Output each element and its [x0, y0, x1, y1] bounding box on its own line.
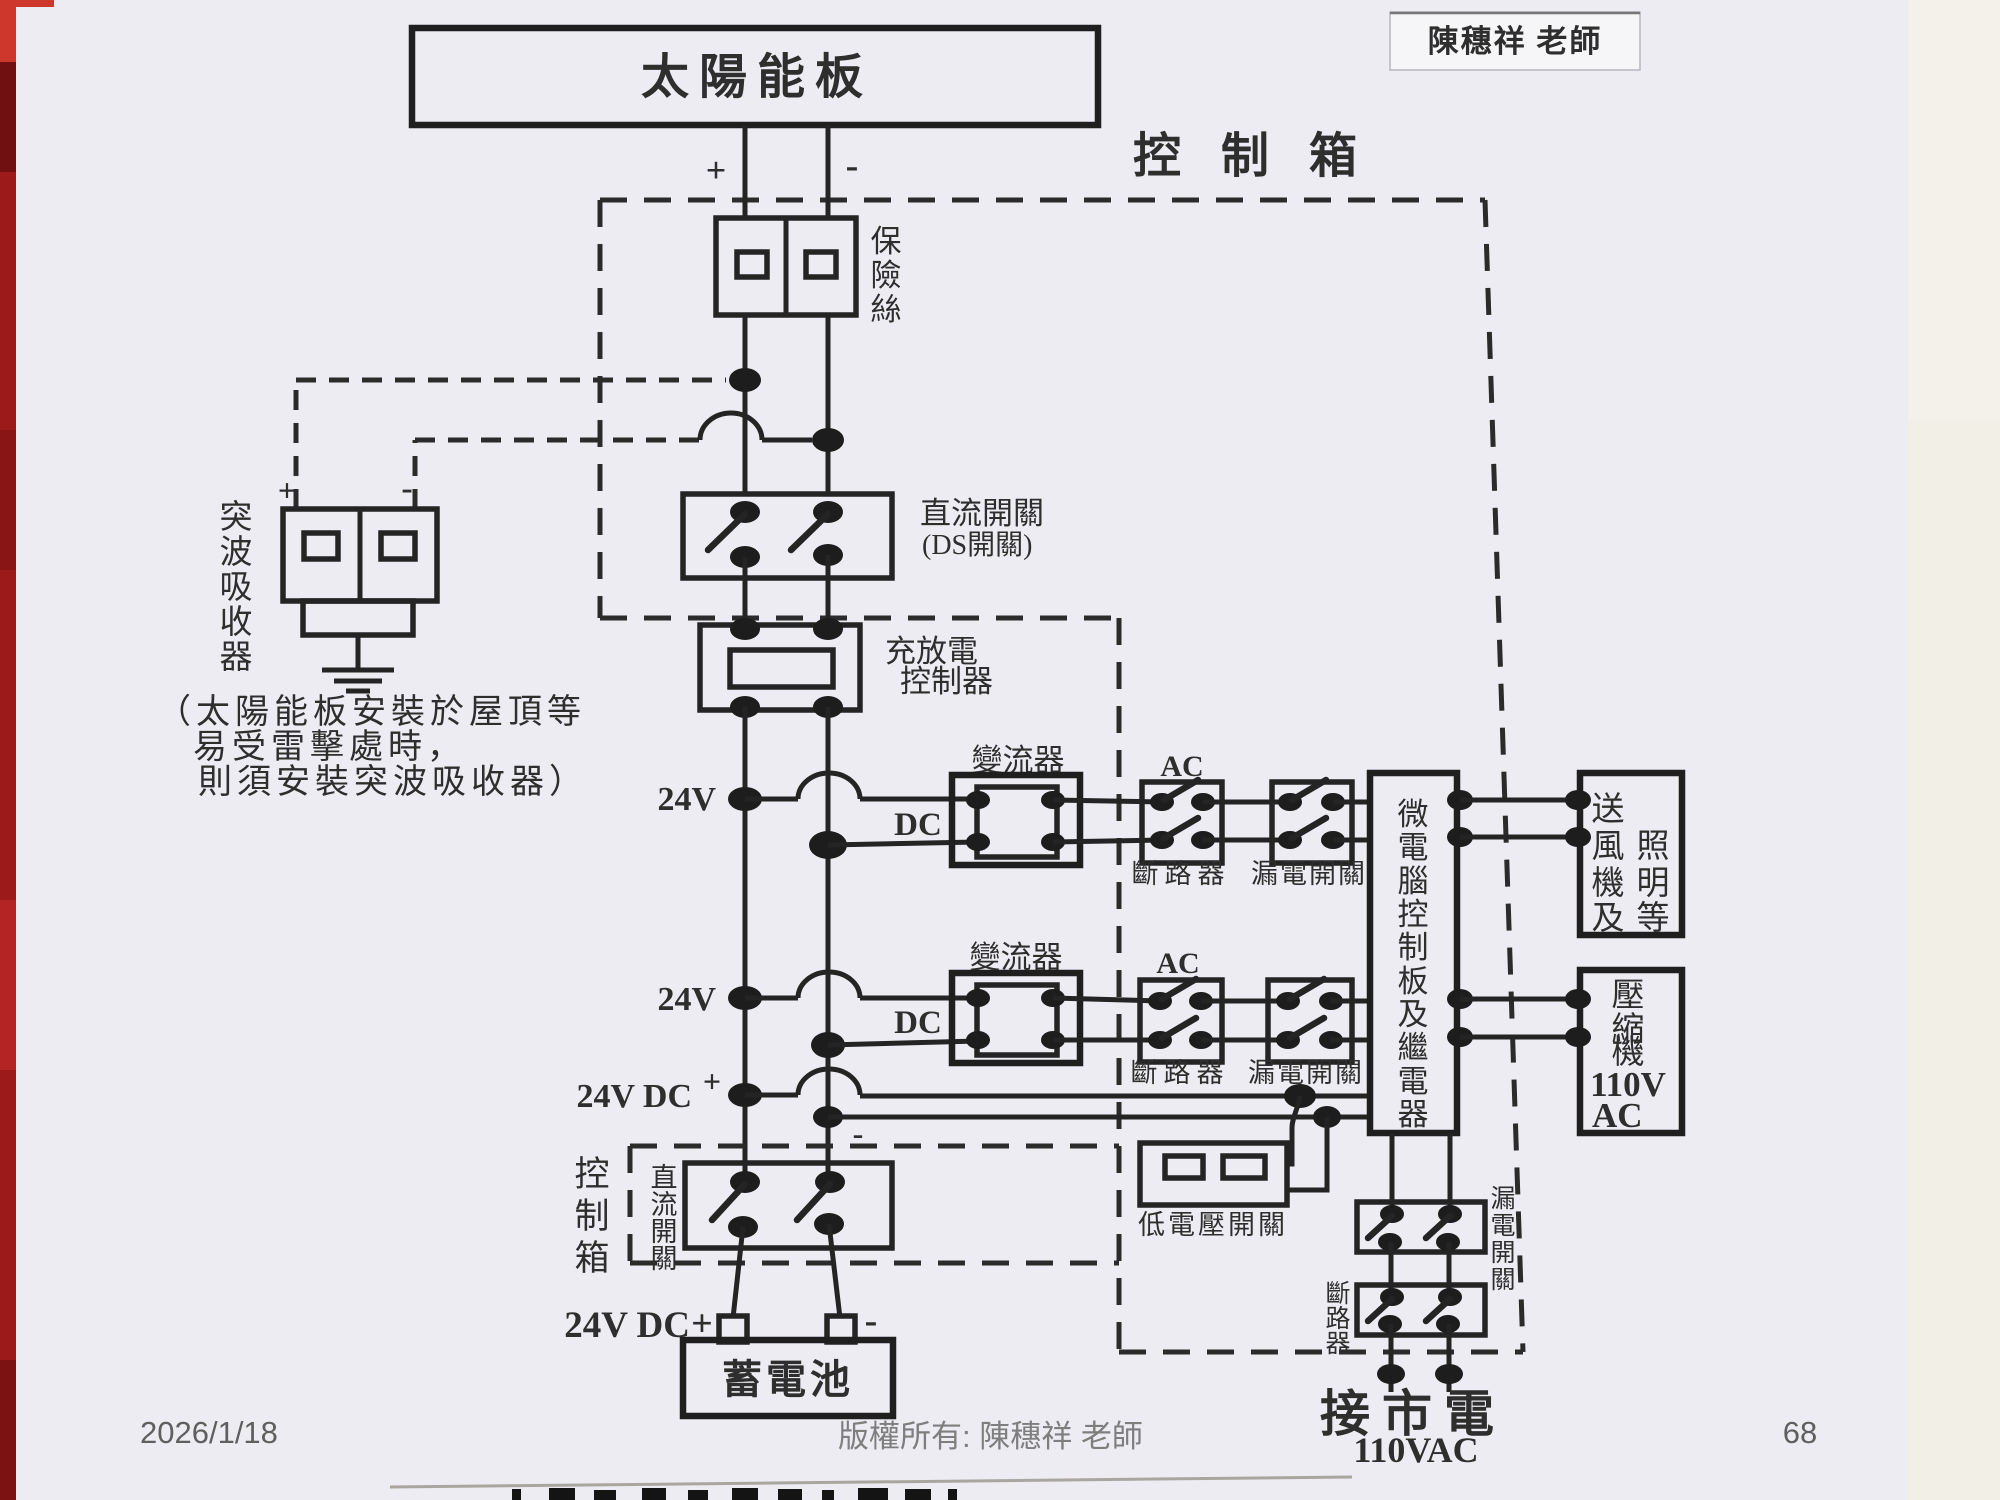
mains-voltage-label: 110VAC [1353, 1430, 1478, 1470]
mains-section: 漏 電 開 關 斷 路 器 接市電 110VAC [1320, 1185, 1516, 1470]
bus-24v-label-1: 24V [657, 781, 716, 818]
fan-char-4: 機 [1592, 865, 1625, 902]
micro-char-10: 器 [1398, 1097, 1429, 1132]
leakage-label-1: 漏電開關 [1251, 859, 1367, 889]
fuse-label-char2: 險 [871, 258, 902, 293]
wiring-diagram: 陳穗祥 老師 控 制 箱 太陽能板 + - 保 險 絲 [0, 0, 2000, 1500]
panel-plus-label: + [706, 150, 727, 190]
scanned-slide: 陳穗祥 老師 控 制 箱 太陽能板 + - 保 險 絲 [0, 0, 2000, 1500]
surge-label-char2: 波 [220, 534, 253, 571]
bus-24vdc-label: 24V DC [576, 1078, 692, 1115]
footer-date: 2026/1/18 [140, 1415, 278, 1450]
surge-absorber: + - 突 波 吸 收 器 （太陽能板安裝於屋頂等 易受雷擊處時， 則須安裝突波… [157, 380, 812, 801]
micro-char-5: 制 [1398, 930, 1429, 965]
microcomputer-board: 微 電 腦 控 制 板 及 繼 電 器 [1370, 773, 1580, 1214]
micro-char-8: 繼 [1398, 1030, 1429, 1065]
surge-label-char5: 器 [220, 640, 253, 676]
ac-row-1: AC 斷路器 漏電開關 [1132, 750, 1371, 889]
control-box-2-char3: 箱 [574, 1239, 609, 1278]
surge-label-char3: 吸 [220, 570, 253, 606]
charge-controller-label-line2: 控制器 [900, 664, 993, 699]
leakage-label-2: 漏電開關 [1248, 1058, 1364, 1088]
dc-switch-2-char3: 開 [651, 1217, 678, 1247]
inverter-1: 變流器 [952, 743, 1162, 865]
surge-label-char4: 收 [220, 604, 253, 641]
fan-char-6: 及 [1592, 901, 1625, 937]
low-voltage-switch-label: 低電壓開關 [1138, 1210, 1288, 1240]
micro-char-2: 電 [1398, 830, 1429, 865]
bus-24vdc-plus: + [703, 1063, 721, 1099]
breaker-label-2: 斷路器 [1131, 1058, 1230, 1088]
fan-char-2: 風 [1592, 829, 1625, 865]
micro-char-7: 及 [1398, 997, 1429, 1032]
surge-label-char1: 突 [220, 499, 253, 536]
dc-switch-label-line1: 直流開關 [920, 496, 1044, 531]
mains-leakage-char3: 開 [1490, 1240, 1515, 1267]
cutoff-caption-fragment [390, 1477, 1352, 1500]
battery-minus-label: - [865, 1300, 878, 1342]
footer: 2026/1/18 版權所有: 陳穗祥 老師 68 [140, 1415, 1817, 1454]
teacher-name: 陳穗祥 老師 [1428, 24, 1603, 59]
battery-label: 蓄電池 [722, 1357, 854, 1402]
micro-char-3: 腦 [1398, 864, 1429, 899]
fan-lighting-load: 送 風 照 機 明 及 等 [1565, 773, 1682, 937]
compressor-ac-label: AC [1592, 1096, 1643, 1135]
battery-24vdc-label: 24V DC [564, 1305, 690, 1346]
fuse-label-char1: 保 [871, 224, 902, 259]
mains-breaker-char1: 斷 [1325, 1280, 1350, 1308]
dc-switch-2-char1: 直 [651, 1163, 678, 1193]
mains-leakage-char1: 漏 [1490, 1185, 1515, 1213]
control-box-title: 控 制 箱 [1133, 130, 1371, 183]
footer-copyright: 版權所有: 陳穗祥 老師 [838, 1419, 1143, 1454]
dc-switch-label-line2: (DS開關) [922, 530, 1032, 561]
surge-minus-label: - [401, 470, 412, 507]
teacher-stamp: 陳穗祥 老師 [1390, 12, 1640, 70]
bus-dc-label-1: DC [894, 807, 942, 843]
solar-panel: 太陽能板 + - [412, 28, 1098, 218]
surge-note-line1: （太陽能板安裝於屋頂等 [157, 693, 586, 731]
fan-char-3: 照 [1637, 829, 1670, 865]
bus-24v-label-2: 24V [657, 981, 716, 1018]
charge-controller: 充放電 控制器 [700, 618, 993, 718]
control-box-2-char2: 制 [574, 1197, 609, 1236]
mains-leakage-char4: 關 [1490, 1267, 1515, 1294]
surge-note-line3: 則須安裝突波吸收器） [198, 763, 588, 801]
dc-switch-1: 直流開關 (DS開關) [683, 494, 1044, 629]
fuse-label-char3: 絲 [871, 292, 902, 327]
solar-panel-label: 太陽能板 [641, 51, 873, 104]
micro-char-1: 微 [1398, 797, 1429, 832]
surge-note-line2: 易受雷擊處時， [193, 728, 466, 766]
breaker-label-1: 斷路器 [1132, 859, 1231, 889]
compressor-char-1: 壓 [1612, 978, 1645, 1014]
dc-switch-2-char2: 流 [651, 1190, 678, 1220]
micro-char-6: 板 [1398, 964, 1429, 999]
fan-char-7: 等 [1637, 900, 1670, 937]
dc-switch-2-char4: 關 [651, 1244, 678, 1274]
fuse-block: 保 險 絲 [716, 218, 902, 494]
ac-row-2: AC 斷路器 漏電開關 [1131, 947, 1371, 1088]
mains-breaker-char2: 路 [1325, 1305, 1350, 1333]
fan-char-5: 明 [1637, 866, 1670, 902]
compressor-load: 壓 縮 機 110V AC [1565, 970, 1682, 1135]
footer-page-number: 68 [1783, 1415, 1817, 1450]
ac-label-2: AC [1156, 947, 1199, 980]
fan-char-1: 送 [1592, 791, 1625, 828]
surge-plus-label: + [278, 472, 296, 508]
inverter-2: 變流器 [952, 940, 1160, 1063]
panel-minus-label: - [846, 145, 859, 187]
mains-leakage-char2: 電 [1490, 1213, 1515, 1240]
control-box-2-char1: 控 [574, 1155, 609, 1194]
micro-char-9: 電 [1398, 1064, 1429, 1099]
battery: 24V DC + - 蓄電池 [564, 1224, 893, 1416]
control-box-2: 控 制 箱 直 流 開 關 [574, 1146, 1119, 1278]
mains-breaker-char3: 器 [1325, 1331, 1350, 1358]
micro-char-4: 控 [1398, 897, 1429, 932]
bus-dc-label-2: DC [894, 1005, 942, 1041]
